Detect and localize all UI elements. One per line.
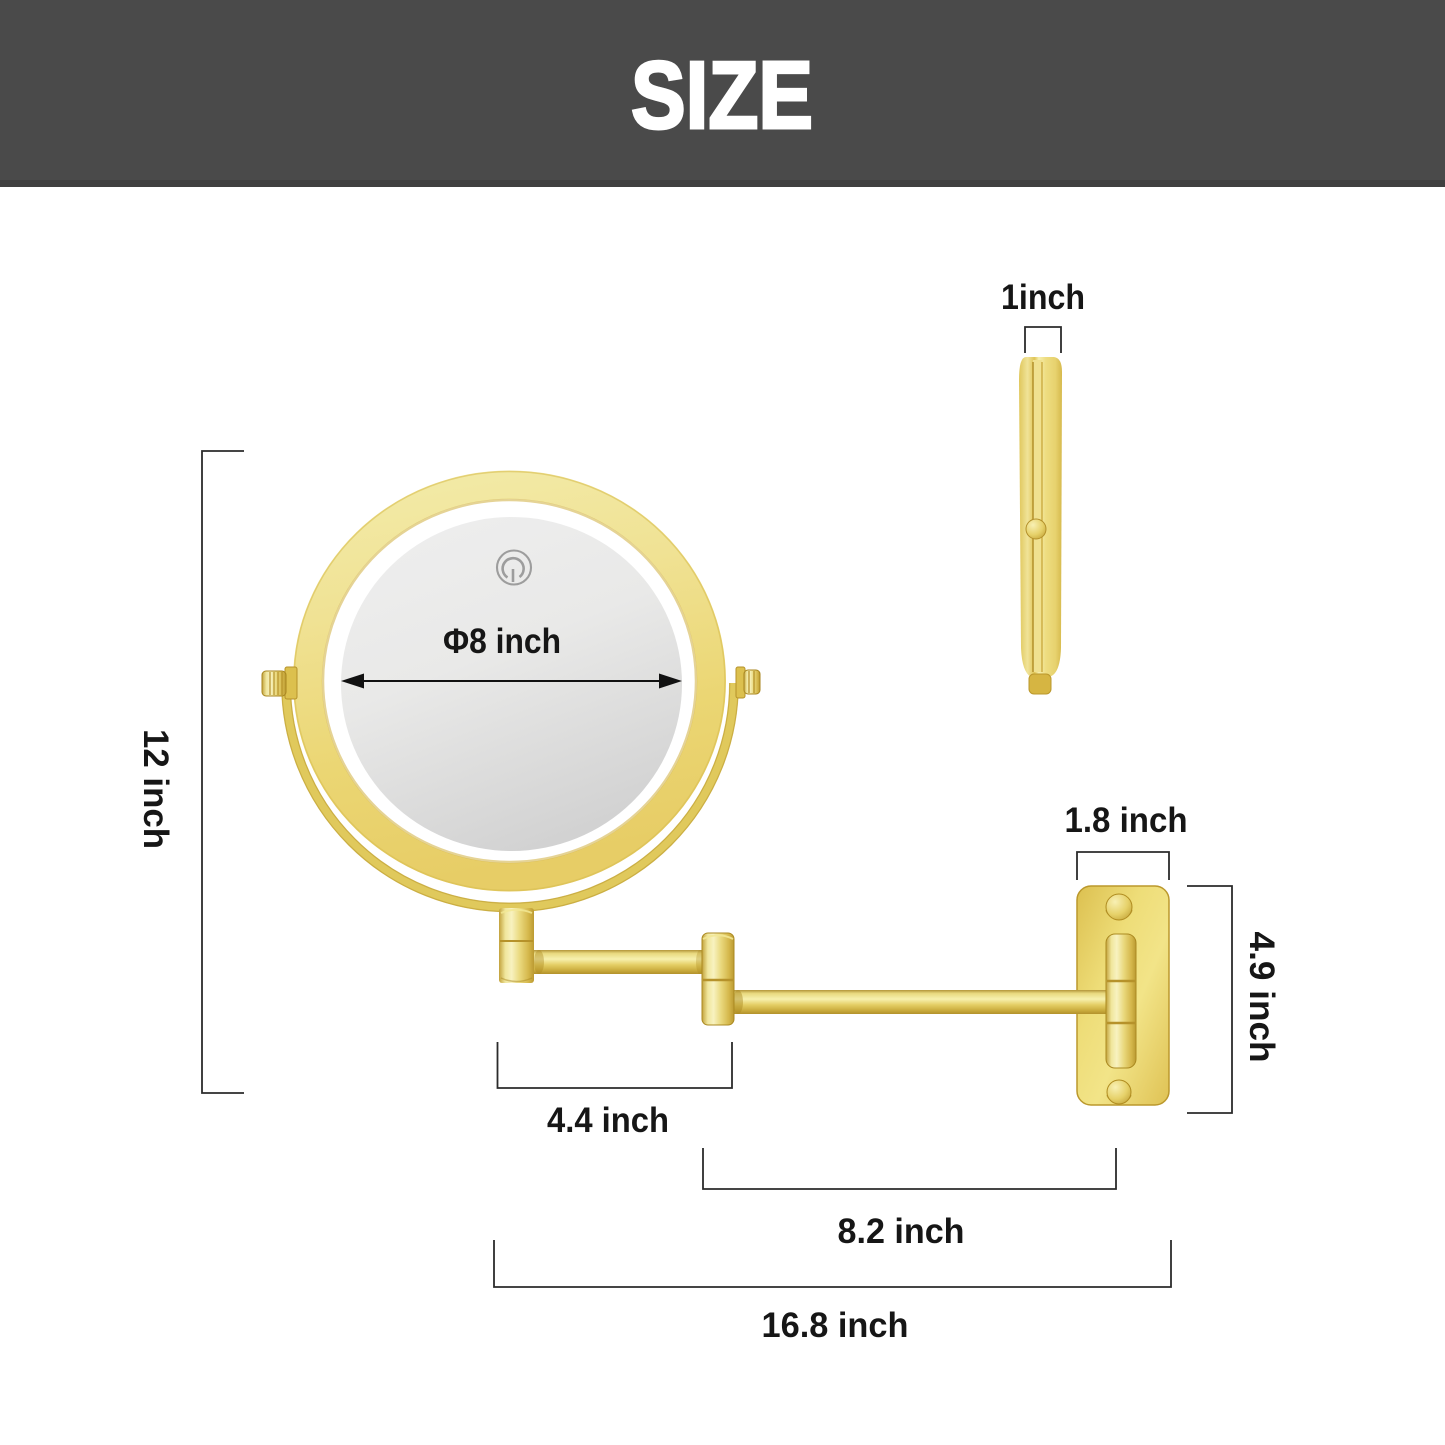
svg-text:1.8 inch: 1.8 inch [1065,801,1188,840]
svg-text:12 inch: 12 inch [136,729,175,849]
svg-text:4.9 inch: 4.9 inch [1242,932,1281,1063]
svg-text:SIZE: SIZE [631,42,813,149]
svg-text:8.2 inch: 8.2 inch [838,1212,965,1251]
svg-text:16.8 inch: 16.8 inch [762,1306,909,1345]
svg-text:1inch: 1inch [1001,278,1085,317]
svg-text:Φ8 inch: Φ8 inch [443,622,561,661]
svg-text:4.4 inch: 4.4 inch [547,1101,669,1140]
